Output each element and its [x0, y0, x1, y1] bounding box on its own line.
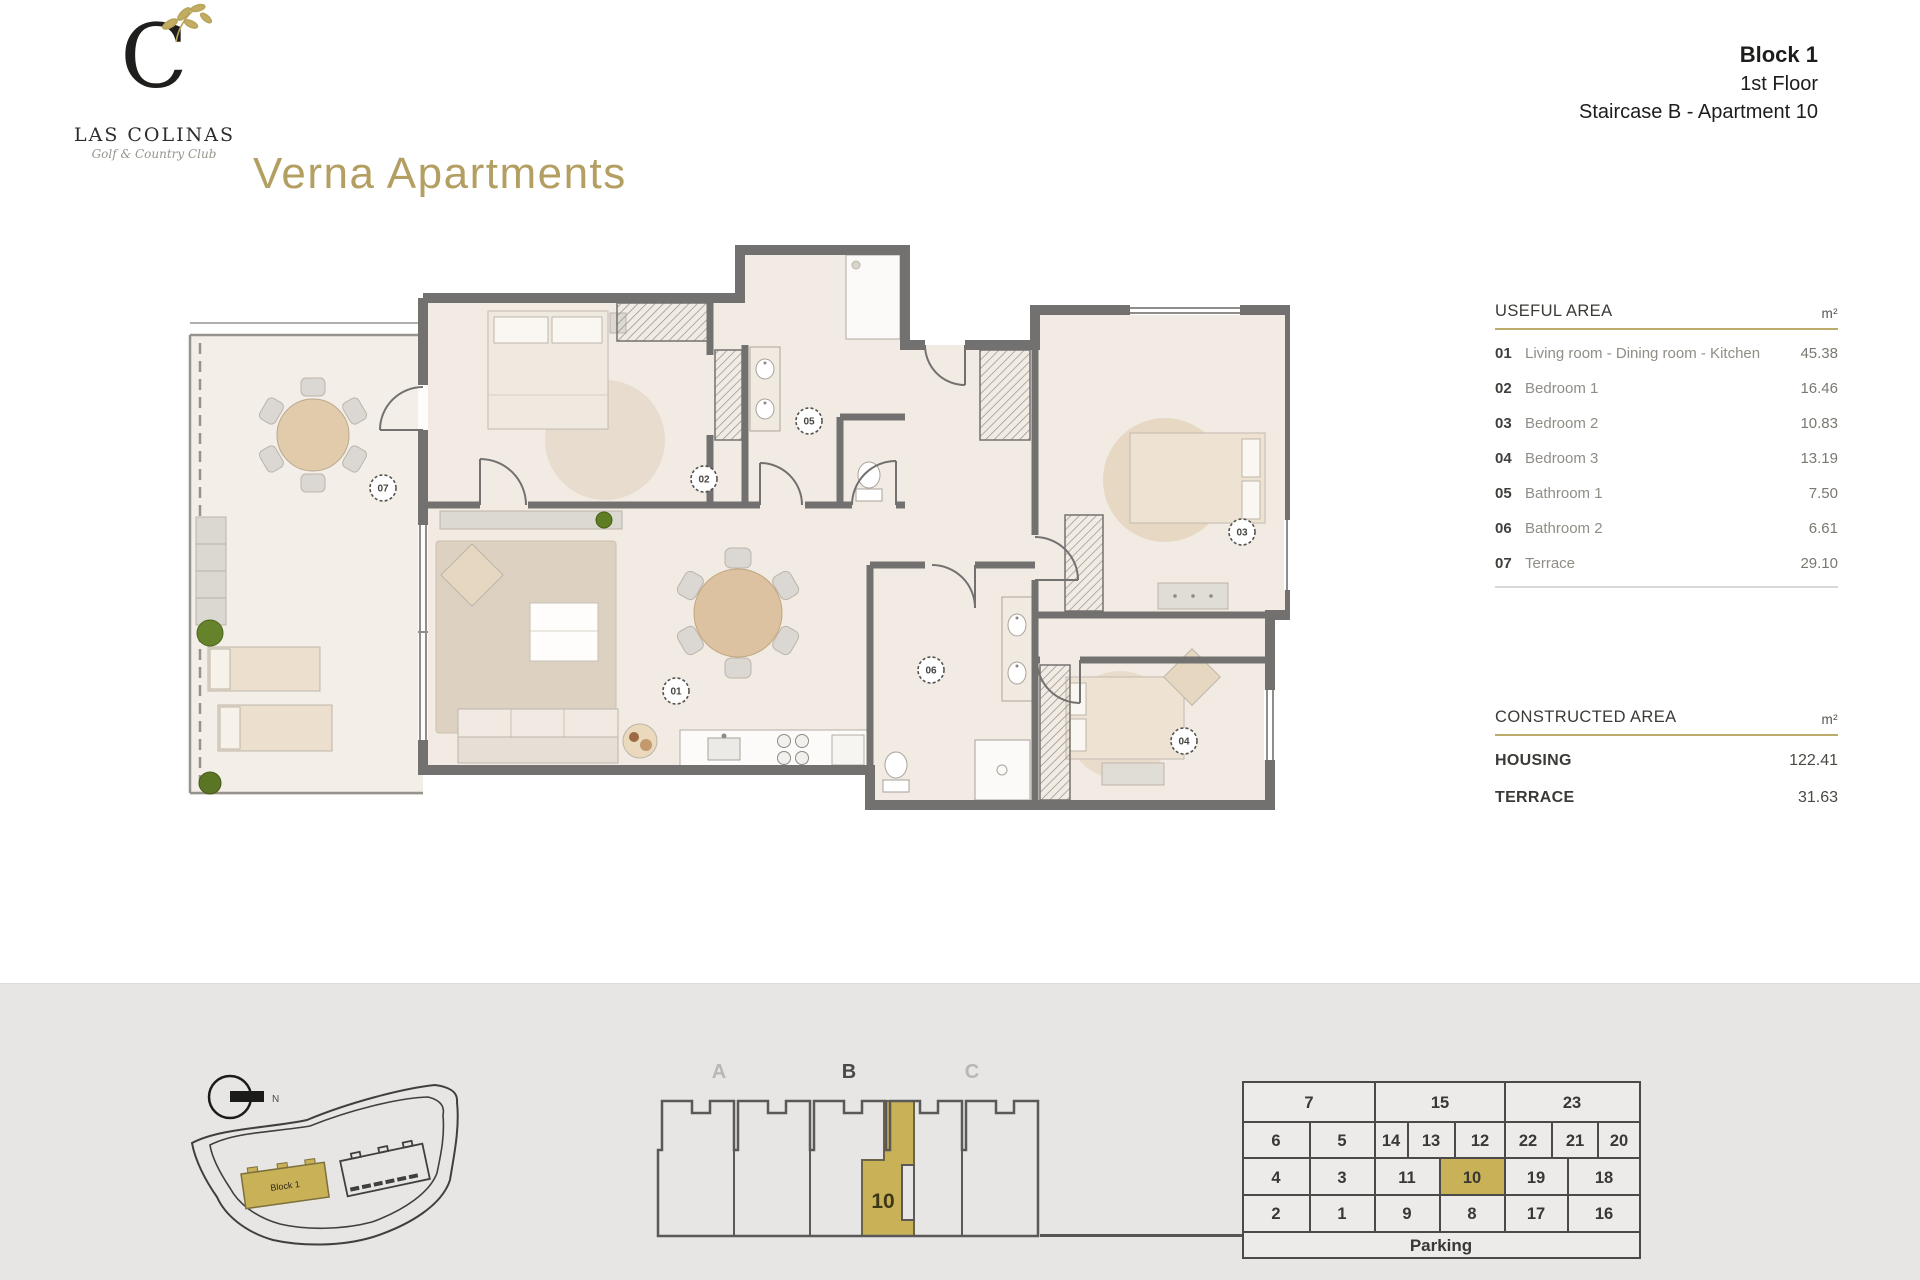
unit-divisions	[734, 1150, 962, 1236]
area-row: 04 Bedroom 3 13.19	[1495, 441, 1838, 476]
room-label-01: 01	[663, 678, 689, 704]
room-label-06: 06	[918, 657, 944, 683]
ground-line	[1040, 1234, 1245, 1237]
parking-cell: 6	[1271, 1132, 1280, 1150]
area-row: 03 Bedroom 2 10.83	[1495, 406, 1838, 441]
north-label: N	[272, 1094, 279, 1105]
parking-cell: 4	[1271, 1169, 1281, 1187]
block-label: Block 1	[1579, 42, 1818, 68]
useful-area-header: USEFUL AREA m²	[1495, 302, 1838, 330]
constructed-area-header: CONSTRUCTED AREA m²	[1495, 708, 1838, 736]
parking-cell: 12	[1471, 1132, 1489, 1150]
svg-text:02: 02	[698, 475, 710, 486]
room-label-03: 03	[1229, 519, 1255, 545]
parking-cell: 22	[1519, 1132, 1537, 1150]
parking-footer-label: Parking	[1410, 1236, 1472, 1255]
parking-grid: 7 15 23 6 5 14 13 12 22 21 20 4 3 11 10 …	[1240, 1075, 1645, 1265]
site-inner-road	[210, 1097, 443, 1228]
svg-text:03: 03	[1236, 528, 1248, 539]
room-label-02: 02	[691, 466, 717, 492]
parking-cell: 15	[1431, 1094, 1449, 1112]
staircase-c-label: C	[965, 1061, 979, 1083]
svg-text:05: 05	[803, 417, 815, 428]
block1-building: Block 1	[240, 1157, 329, 1208]
parking-cell: 20	[1610, 1132, 1628, 1150]
building-profile	[658, 1101, 1038, 1236]
parking-cell: 18	[1595, 1169, 1613, 1187]
area-row: 05 Bathroom 1 7.50	[1495, 476, 1838, 511]
svg-text:04: 04	[1178, 737, 1190, 748]
neighbor-building-outline	[339, 1139, 430, 1197]
parking-cell: 8	[1467, 1205, 1476, 1223]
parking-cell: 13	[1422, 1132, 1440, 1150]
unit-10-notch	[902, 1165, 914, 1220]
logo-brand-sub: Golf & Country Club	[74, 147, 234, 161]
plant	[197, 620, 223, 646]
page-title: Verna Apartments	[253, 149, 627, 199]
staircase-b-label: B	[842, 1061, 856, 1083]
area-row: 07 Terrace 29.10	[1495, 546, 1838, 581]
staircase-a-label: A	[712, 1061, 726, 1083]
parking-cell: 19	[1527, 1169, 1545, 1187]
logo-brand: LAS COLINAS	[74, 124, 234, 146]
parking-cell: 16	[1595, 1205, 1613, 1223]
parking-cell: 3	[1337, 1169, 1346, 1187]
room-label-07: 07	[370, 475, 396, 501]
floor-label: 1st Floor	[1579, 73, 1818, 96]
parking-cell: 9	[1402, 1205, 1411, 1223]
parking-cell: 14	[1382, 1132, 1401, 1150]
constructed-area-table: CONSTRUCTED AREA m² HOUSING 122.41 TERRA…	[1495, 708, 1838, 816]
north-indicator: N	[209, 1076, 279, 1118]
parking-cell: 7	[1304, 1094, 1313, 1112]
bedroom1-furniture	[488, 311, 626, 429]
parking-cell: 5	[1337, 1132, 1346, 1150]
parking-cell: 11	[1398, 1169, 1415, 1187]
site-plan: N Block 1	[150, 1040, 480, 1275]
constructed-area-unit: m²	[1821, 712, 1838, 727]
staircase-label: Staircase B - Apartment 10	[1579, 101, 1818, 124]
svg-text:07: 07	[377, 484, 389, 495]
parking-cell: 1	[1337, 1205, 1346, 1223]
parking-cell: 2	[1271, 1205, 1280, 1223]
apartment-info: Block 1 1st Floor Staircase B - Apartmen…	[1579, 42, 1818, 129]
area-row: 02 Bedroom 1 16.46	[1495, 371, 1838, 406]
svg-text:06: 06	[925, 666, 937, 677]
olive-leaves-icon	[158, 2, 218, 44]
room-label-05: 05	[796, 408, 822, 434]
area-row: TERRACE 31.63	[1495, 779, 1838, 816]
area-row: HOUSING 122.41	[1495, 742, 1838, 779]
constructed-area-title: CONSTRUCTED AREA	[1495, 708, 1677, 727]
parking-cell: 21	[1566, 1132, 1584, 1150]
parking-cell: 23	[1563, 1094, 1581, 1112]
parking-cell-10: 10	[1463, 1169, 1481, 1187]
area-row: 06 Bathroom 2 6.61	[1495, 511, 1838, 546]
kitchen-counter	[680, 730, 868, 768]
room-label-04: 04	[1171, 728, 1197, 754]
useful-area-unit: m²	[1821, 306, 1838, 321]
area-row: 01 Living room - Dining room - Kitchen 4…	[1495, 336, 1838, 371]
las-colinas-logo: C LAS COLINAS Golf & Country Club	[74, 6, 234, 161]
useful-area-table: USEFUL AREA m² 01 Living room - Dining r…	[1495, 302, 1838, 588]
parking-cell: 17	[1527, 1205, 1545, 1223]
brochure-page: C LAS COLINAS Golf & Country Club Verna …	[0, 0, 1920, 1280]
plant	[199, 772, 221, 794]
useful-area-title: USEFUL AREA	[1495, 302, 1613, 321]
floor-plan: 01 02 03 04 05 06 07	[180, 235, 1290, 815]
svg-text:01: 01	[670, 687, 682, 698]
elevation-diagram: A B C 10	[640, 1050, 1060, 1265]
unit-10-label: 10	[871, 1190, 894, 1213]
